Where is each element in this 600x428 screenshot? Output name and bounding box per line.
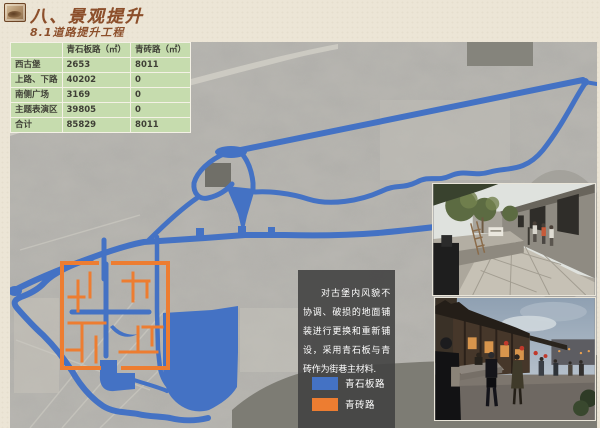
stone-value: 40202 (63, 73, 132, 88)
page-subtitle: 8.1道路提升工程 (30, 24, 125, 40)
brick-road-label: 青砖路 (345, 397, 375, 411)
legend-item-stone: 青石板路 (312, 376, 385, 390)
table-row: 西古堡 2653 8011 (10, 58, 191, 73)
legend-item-brick: 青砖路 (312, 397, 375, 411)
table-row-total: 合计 85829 8011 (10, 118, 191, 133)
brick-value: 8011 (131, 118, 191, 133)
stone-road-swatch (312, 377, 338, 390)
stone-road-label: 青石板路 (345, 376, 385, 390)
header-cell-brick: 青砖路（㎡） (131, 42, 191, 58)
row-label: 南侧广场 (10, 88, 63, 103)
table-row: 上路、下路 40202 0 (10, 73, 191, 88)
row-label: 西古堡 (10, 58, 63, 73)
header-cell-blank (10, 42, 63, 58)
header-cell-stone: 青石板路（㎡） (63, 42, 132, 58)
stone-value: 39805 (63, 103, 132, 118)
description-box: 对古堡内风貌不协调、破损的地面铺装进行更换和重新铺设，采用青石板与青砖作为街巷主… (298, 270, 395, 428)
row-label: 上路、下路 (10, 73, 63, 88)
brick-value: 0 (131, 103, 191, 118)
stone-value: 2653 (63, 58, 132, 73)
photo-evening-street (434, 297, 596, 421)
row-label: 主题表演区 (10, 103, 63, 118)
stone-value: 85829 (63, 118, 132, 133)
photo-renovated-alley (432, 183, 596, 296)
brick-road-swatch (312, 398, 338, 411)
description-text: 对古堡内风貌不协调、破损的地面铺装进行更换和重新铺设，采用青石板与青砖作为街巷主… (303, 285, 390, 380)
row-label: 合计 (10, 118, 63, 133)
table-row: 南侧广场 3169 0 (10, 88, 191, 103)
header-seal-icon (4, 3, 26, 22)
slide: { "header": { "title": "八、景观提升", "subtit… (0, 0, 600, 428)
brick-value: 0 (131, 88, 191, 103)
road-area-table: 青石板路（㎡） 青砖路（㎡） 西古堡 2653 8011 上路、下路 40202… (10, 42, 191, 133)
table-header-row: 青石板路（㎡） 青砖路（㎡） (10, 42, 191, 58)
table-row: 主题表演区 39805 0 (10, 103, 191, 118)
brick-value: 0 (131, 73, 191, 88)
brick-value: 8011 (131, 58, 191, 73)
stone-value: 3169 (63, 88, 132, 103)
